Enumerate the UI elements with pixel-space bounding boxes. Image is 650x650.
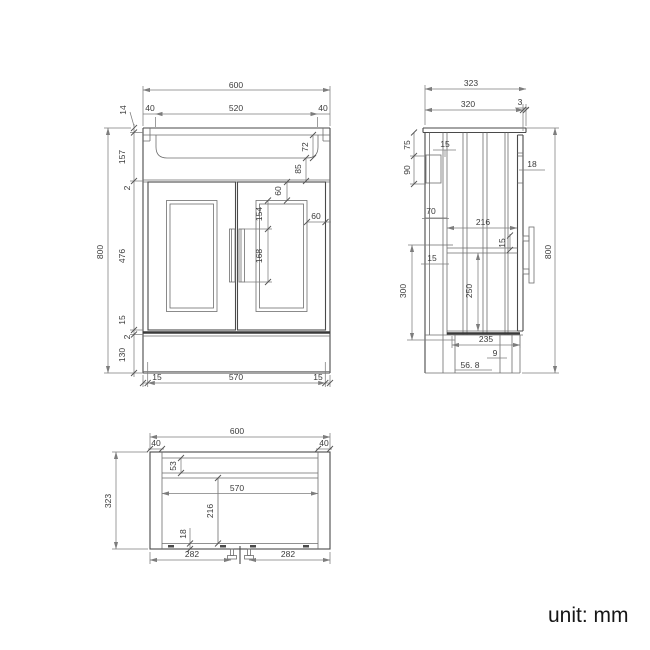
dim-front-counter-thickness: 14 xyxy=(118,105,128,115)
dim-front-right-overhang: 40 xyxy=(318,103,328,113)
dim-front-bottom-reveal: 2 xyxy=(122,334,132,339)
dim-side-overall-depth: 323 xyxy=(464,78,478,88)
dim-plan-overall-width: 600 xyxy=(230,426,244,436)
hinge-marks xyxy=(168,545,309,548)
dim-side-bottom-inner-depth: 235 xyxy=(479,334,493,344)
dim-front-basin-depth: 72 xyxy=(300,142,310,152)
dim-side-partition-inset: 15 xyxy=(427,253,437,263)
dim-front-basin-width: 520 xyxy=(229,103,243,113)
left-door-panel-bevel xyxy=(170,204,214,308)
right-door-handle xyxy=(239,229,245,282)
front-view: 600 40 520 40 14 157 2 476 15 2 130 800 … xyxy=(95,80,333,387)
dim-front-top-reveal: 2 xyxy=(122,185,132,190)
dim-front-upper-section: 157 xyxy=(117,150,127,164)
dim-side-upper-clearance: 70 xyxy=(426,206,436,216)
dim-front-bottom-rail: 15 xyxy=(117,315,127,325)
dim-front-overall-width: 600 xyxy=(229,80,243,90)
right-door-panel-bevel xyxy=(260,204,304,308)
dim-front-overall-height: 800 xyxy=(95,245,105,259)
dim-side-rail-thickness: 15 xyxy=(497,238,507,248)
dim-front-apron-height: 85 xyxy=(293,164,303,174)
dim-plan-left-panel: 40 xyxy=(151,438,161,448)
side-view: 323 320 3 75 90 15 18 70 216 15 15 250 3… xyxy=(398,78,559,373)
dim-plan-back-rail: 53 xyxy=(168,461,178,471)
plan-left-handle xyxy=(228,549,237,559)
dim-side-leg-front-inset: 9 xyxy=(493,348,498,358)
dim-side-mid-section: 300 xyxy=(398,284,408,298)
dim-side-lower-inner-height: 250 xyxy=(464,284,474,298)
dim-front-bottom-right-inset: 15 xyxy=(313,372,323,382)
dim-plan-inner-depth: 216 xyxy=(205,504,215,518)
plan-view: 600 40 40 323 53 570 216 18 282 282 xyxy=(103,426,333,564)
side-handle xyxy=(523,227,534,283)
left-door-panel xyxy=(167,201,218,312)
dim-side-overall-height: 800 xyxy=(543,245,553,259)
dim-front-panel-top-inset: 60 xyxy=(273,186,283,196)
dim-front-bottom-left-inset: 15 xyxy=(152,372,162,382)
dim-front-panel-side-inset: 60 xyxy=(311,211,321,221)
dim-plan-left-handle-span: 282 xyxy=(185,549,199,559)
left-door-handle xyxy=(230,229,236,282)
dim-side-inner-depth: 216 xyxy=(476,217,490,227)
dim-side-top-depth: 320 xyxy=(461,99,475,109)
vanity-technical-drawing: 600 40 520 40 14 157 2 476 15 2 130 800 … xyxy=(0,0,650,650)
basin-outline xyxy=(156,135,318,158)
plan-right-handle xyxy=(245,549,254,559)
dim-plan-inner-width: 570 xyxy=(230,483,244,493)
dim-side-bracket-height: 90 xyxy=(402,165,412,175)
dim-plan-right-panel: 40 xyxy=(319,438,329,448)
dim-side-bracket-offset: 75 xyxy=(402,140,412,150)
side-view-dimensions: 323 320 3 75 90 15 18 70 216 15 15 250 3… xyxy=(398,78,559,373)
drawing-svg: 600 40 520 40 14 157 2 476 15 2 130 800 … xyxy=(0,0,650,650)
dim-side-front-overhang: 3 xyxy=(518,97,523,107)
dim-plan-front-rail: 18 xyxy=(178,529,188,539)
dim-side-door-thickness: 18 xyxy=(527,159,537,169)
front-view-dimensions: 600 40 520 40 14 157 2 476 15 2 130 800 … xyxy=(95,80,333,387)
dim-front-plinth-height: 130 xyxy=(117,348,127,362)
dim-plan-right-handle-span: 282 xyxy=(281,549,295,559)
dim-front-handle-top-offset: 154 xyxy=(254,207,264,221)
dim-side-back-panel-inset: 15 xyxy=(440,139,450,149)
unit-label: unit: mm xyxy=(548,604,629,627)
dim-front-door-opening: 570 xyxy=(229,372,243,382)
dim-front-handle-length: 168 xyxy=(254,249,264,263)
dim-front-left-overhang: 40 xyxy=(145,103,155,113)
wall-bracket xyxy=(426,155,441,183)
dim-plan-overall-depth: 323 xyxy=(103,494,113,508)
dim-front-door-height: 476 xyxy=(117,249,127,263)
dim-side-leg-offset: 56. 8 xyxy=(461,360,480,370)
